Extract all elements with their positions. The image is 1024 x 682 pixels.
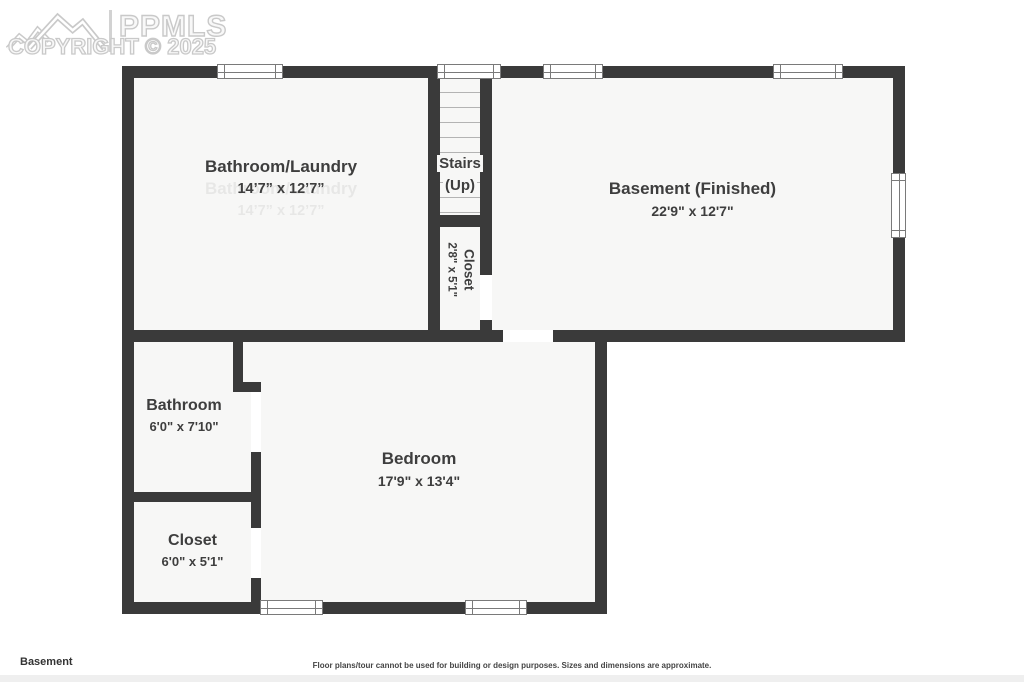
room-label-bathroom: Bathroom 6'0" x 7'10" [134, 396, 234, 436]
door-opening-closet-lower [251, 528, 261, 578]
room-label-bathroom-laundry: Bathroom/Laundry 14’7” x 12’7” [134, 156, 428, 199]
disclaimer-text: Floor plans/tour cannot be used for buil… [0, 661, 1024, 670]
room-label-basement-finished: Basement (Finished) 22'9" x 12'7" [492, 178, 893, 220]
floor-plan-page: PPMLS COPYRIGHT © 2025 Bathroom/Laundry [0, 0, 1024, 682]
window-symbol [437, 64, 501, 79]
wall-stairs-left [428, 78, 440, 330]
stair-tread [440, 212, 480, 213]
footer-bar [0, 675, 1024, 682]
stair-tread [440, 92, 480, 93]
wall-exterior-bottom [122, 602, 607, 614]
window-symbol [217, 64, 283, 79]
stair-tread [440, 122, 480, 123]
room-label-closet-small: Closet 2'8" x 5'1" [444, 215, 477, 325]
window-symbol [773, 64, 843, 79]
room-label-closet-lower: Closet 6'0" x 5'1" [134, 531, 251, 571]
stair-tread [440, 197, 480, 198]
stair-tread [440, 107, 480, 108]
door-opening-closet-small [480, 275, 492, 320]
door-opening-bathroom [251, 392, 261, 452]
window-symbol [260, 600, 323, 615]
door-opening-basement-bedroom [503, 330, 553, 342]
room-label-bedroom: Bedroom 17'9" x 13'4" [243, 448, 595, 490]
window-symbol [891, 173, 906, 238]
wall-closet-right-upper [251, 502, 261, 528]
ppmls-watermark: PPMLS COPYRIGHT © 2025 [6, 2, 326, 64]
room-label-stairs: Stairs (Up) [428, 153, 492, 197]
window-symbol [465, 600, 527, 615]
wall-bathroom-jog [233, 382, 261, 392]
wall-bedroom-right [595, 342, 607, 614]
wall-closet-small-stub [480, 320, 492, 330]
wall-closet-top [122, 492, 261, 502]
window-symbol [543, 64, 603, 79]
copyright-watermark: COPYRIGHT © 2025 [8, 34, 216, 60]
stair-tread [440, 137, 480, 138]
